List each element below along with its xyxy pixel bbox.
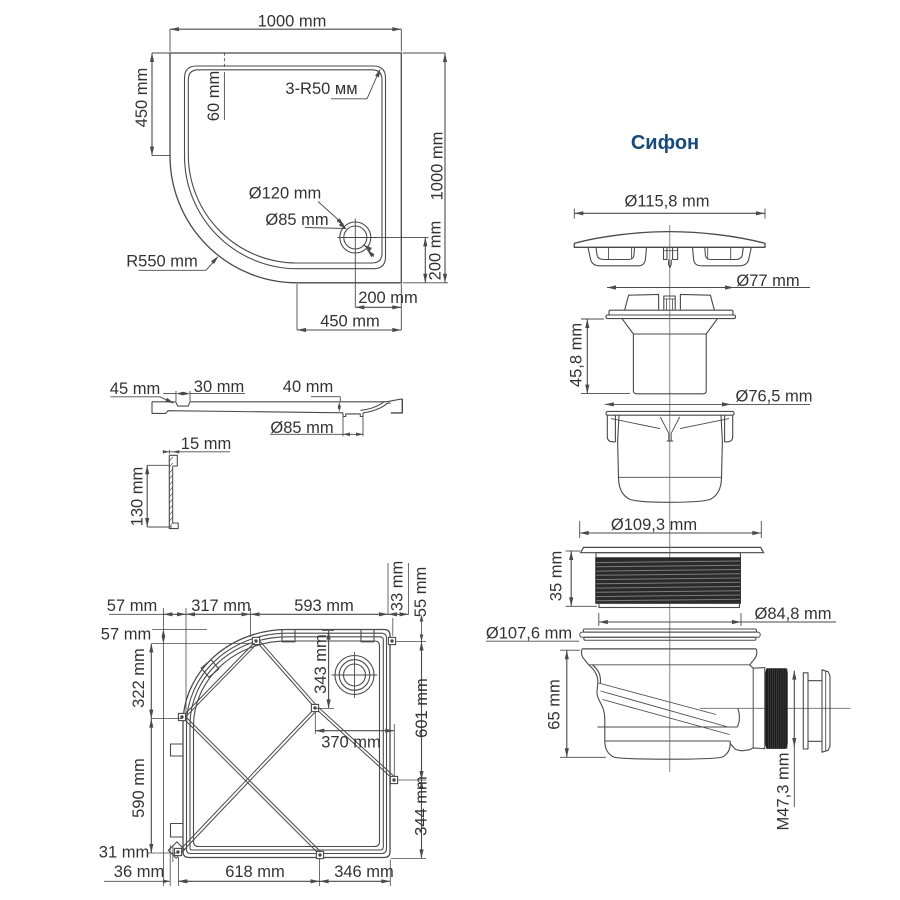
svg-text:55 mm: 55 mm <box>412 567 430 617</box>
svg-text:45,8 mm: 45,8 mm <box>567 323 585 387</box>
svg-text:30 mm: 30 mm <box>194 378 244 396</box>
svg-text:200 mm: 200 mm <box>426 221 444 281</box>
svg-text:200 mm: 200 mm <box>358 289 418 307</box>
svg-text:130 mm: 130 mm <box>128 467 146 527</box>
svg-text:346 mm: 346 mm <box>334 863 394 881</box>
svg-text:Ø84,8 mm: Ø84,8 mm <box>754 605 831 623</box>
svg-text:57 mm: 57 mm <box>101 625 151 643</box>
svg-text:Ø107,6 mm: Ø107,6 mm <box>486 624 572 642</box>
svg-text:343 mm: 343 mm <box>312 634 330 694</box>
svg-text:618 mm: 618 mm <box>225 863 285 881</box>
svg-text:40 mm: 40 mm <box>283 378 333 396</box>
svg-text:Ø77 mm: Ø77 mm <box>736 272 799 290</box>
svg-text:35 mm: 35 mm <box>547 551 565 601</box>
svg-text:601 mm: 601 mm <box>413 678 431 738</box>
svg-text:593 mm: 593 mm <box>294 597 354 615</box>
svg-text:1000 mm: 1000 mm <box>428 132 446 201</box>
svg-text:45 mm: 45 mm <box>110 380 160 398</box>
svg-text:322 mm: 322 mm <box>130 648 148 708</box>
svg-text:R550 mm: R550 mm <box>126 252 198 270</box>
svg-text:Ø109,3 mm: Ø109,3 mm <box>611 516 697 534</box>
svg-text:M47,3 mm: M47,3 mm <box>774 753 792 831</box>
svg-text:Ø76,5 mm: Ø76,5 mm <box>735 387 812 405</box>
svg-text:3-R50 мм: 3-R50 мм <box>285 80 357 98</box>
svg-text:65 mm: 65 mm <box>545 679 563 729</box>
svg-text:Ø120 mm: Ø120 mm <box>249 184 321 202</box>
svg-text:57 mm: 57 mm <box>107 597 157 615</box>
svg-text:60 mm: 60 mm <box>205 71 223 121</box>
svg-text:317 mm: 317 mm <box>191 597 251 615</box>
svg-text:36 mm: 36 mm <box>114 863 164 881</box>
svg-text:344 mm: 344 mm <box>412 776 430 836</box>
svg-text:370 mm: 370 mm <box>321 733 381 751</box>
svg-text:31 mm: 31 mm <box>99 843 149 861</box>
svg-text:450 mm: 450 mm <box>320 312 380 330</box>
svg-text:450 mm: 450 mm <box>133 68 151 128</box>
svg-text:Сифон: Сифон <box>631 132 699 154</box>
svg-text:Ø115,8 mm: Ø115,8 mm <box>625 192 710 210</box>
svg-text:Ø85 mm: Ø85 mm <box>265 211 328 229</box>
svg-text:1000 mm: 1000 mm <box>258 12 327 30</box>
svg-text:590 mm: 590 mm <box>130 758 148 818</box>
svg-text:33 mm: 33 mm <box>388 561 406 611</box>
svg-text:15 mm: 15 mm <box>181 435 231 453</box>
